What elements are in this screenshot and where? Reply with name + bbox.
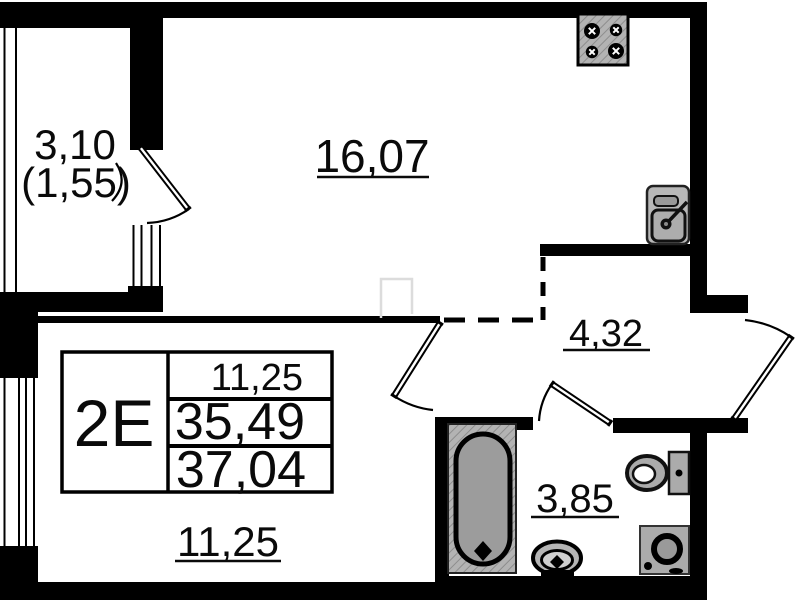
- bathroom-area-label: 3,85: [536, 477, 614, 521]
- door-leaf: [392, 322, 442, 397]
- door-leaf: [551, 382, 611, 425]
- washer-knob: [644, 562, 652, 570]
- toilet-icon: [627, 452, 689, 494]
- basin-base: [541, 570, 574, 576]
- sink-drain-center: [664, 222, 668, 226]
- washing-machine-icon: [640, 526, 689, 574]
- unit-total-area-value: 37,04: [176, 441, 306, 499]
- wall-left-pier: [0, 292, 38, 378]
- door-leaf: [138, 146, 189, 211]
- bathroom-door: [539, 381, 612, 426]
- open-boundary-dashed: [444, 257, 543, 320]
- wall-balcony-partition: [130, 28, 163, 150]
- hallway-area-label: 4,32: [569, 313, 643, 355]
- balcony-door: [137, 145, 191, 223]
- wash-basin-icon: [533, 542, 581, 577]
- floor-plan-drawing: 3,10 (1,55) 16,07 4,32 3,85 11,25 2Е 11,…: [0, 0, 799, 600]
- door-swing-arc: [539, 384, 552, 421]
- washer-detail: [669, 568, 683, 574]
- door-swing-arc: [745, 320, 791, 337]
- toilet-bowl-inner: [633, 465, 655, 483]
- wall-right-upper: [690, 2, 707, 296]
- wall-bedroom-top-thin: [38, 316, 440, 323]
- watermark: [381, 279, 412, 318]
- wall-hallway-top: [540, 244, 690, 256]
- kitchen-sink-icon: [647, 186, 689, 244]
- unit-info-table: 2Е 11,25 35,49 37,04: [62, 352, 332, 499]
- wall-left-corner: [0, 546, 38, 600]
- wall-entry-top: [690, 295, 748, 313]
- washer-door: [654, 536, 680, 562]
- wall-balcony-window-block: [128, 286, 163, 312]
- toilet-tank-button: [676, 470, 683, 477]
- wall-bottom-bathroom: [435, 576, 707, 600]
- door-leaf: [732, 336, 793, 421]
- door-swing-arc: [147, 209, 189, 223]
- living-room-area-label: 16,07: [314, 130, 429, 182]
- bedroom-area-label: 11,25: [177, 518, 279, 565]
- balcony-area-reduced-label: (1,55): [21, 159, 131, 206]
- walls: [0, 2, 748, 600]
- stove-icon: [578, 14, 628, 65]
- sink-faucet-base: [654, 196, 678, 206]
- wall-top-balcony: [0, 2, 163, 28]
- room-labels: 3,10 (1,55) 16,07 4,32 3,85 11,25: [21, 121, 650, 565]
- wall-entry-bottom: [613, 418, 748, 433]
- wall-right-lower: [690, 433, 707, 600]
- wall-bottom-room: [38, 582, 437, 600]
- bedroom-door: [391, 321, 443, 410]
- door-swing-arc: [394, 396, 433, 410]
- bathtub-icon: [448, 424, 516, 573]
- floor-plan: 3,10 (1,55) 16,07 4,32 3,85 11,25 2Е 11,…: [0, 0, 799, 600]
- wall-bathroom-left: [435, 417, 449, 582]
- unit-type-label: 2Е: [74, 386, 155, 460]
- entrance-door: [731, 320, 794, 421]
